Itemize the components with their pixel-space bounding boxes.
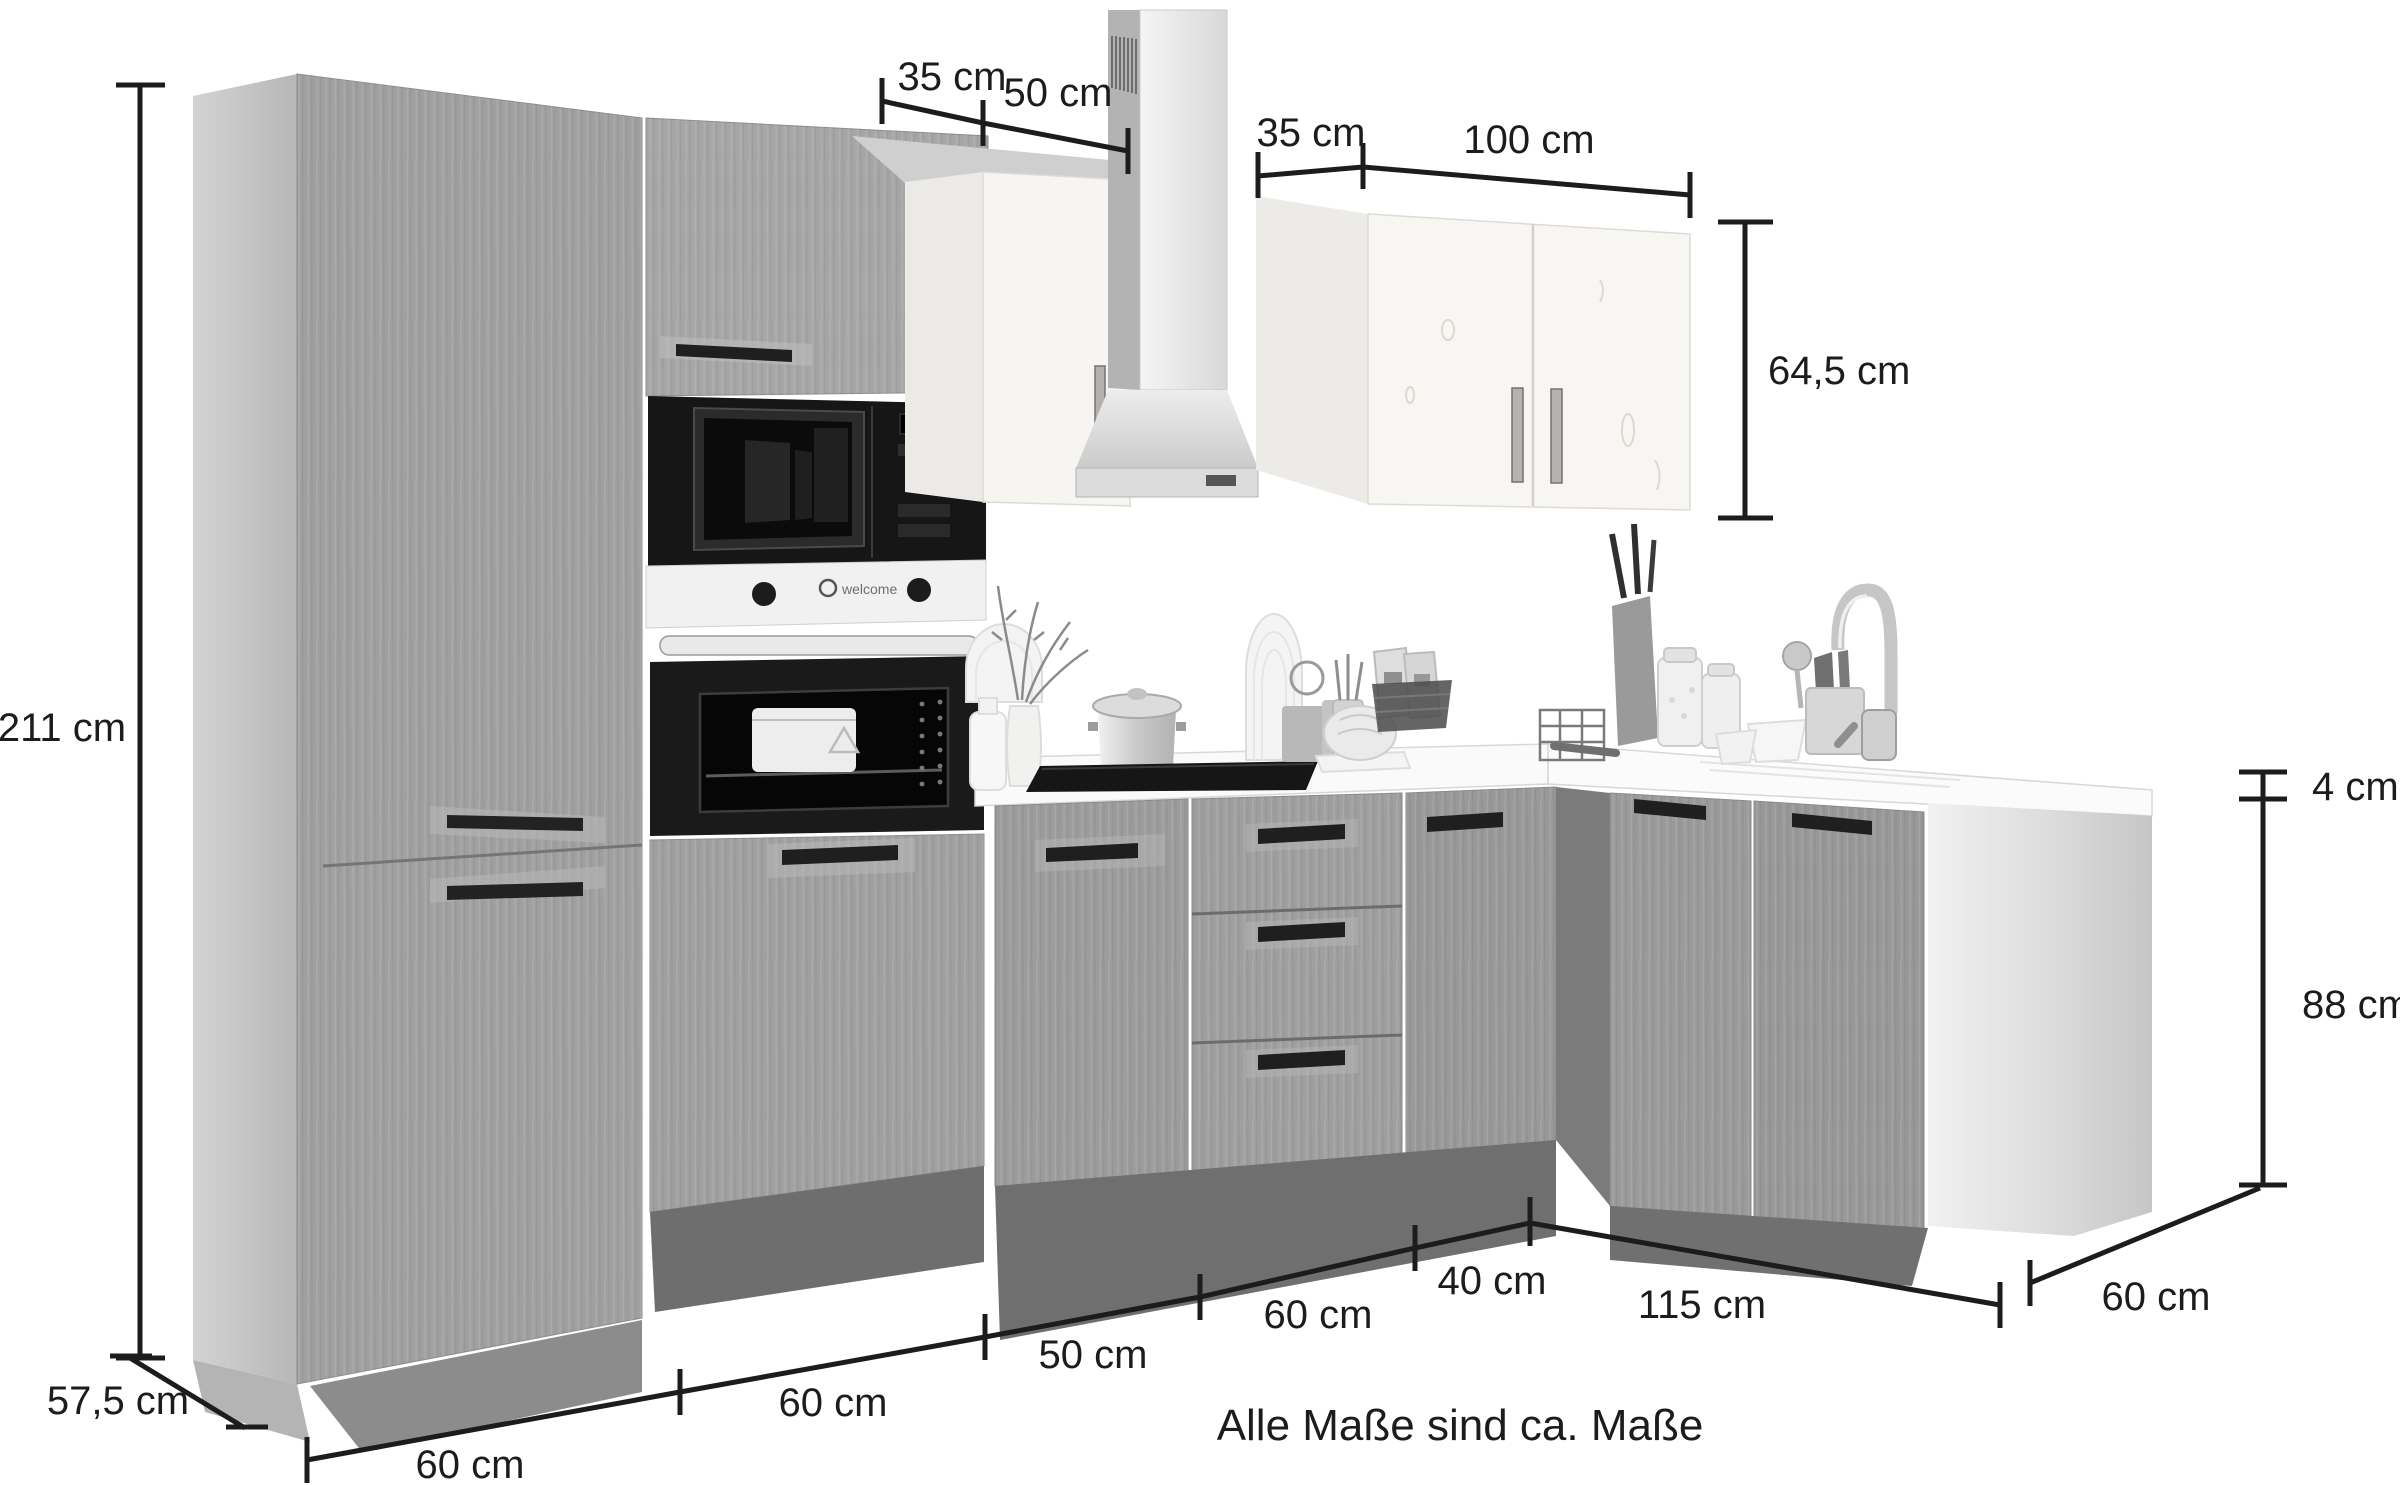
- storage-jar: [1658, 648, 1702, 746]
- utensil-caddy: [1806, 650, 1864, 754]
- measurements-note: Alle Maße sind ca. Maße: [1217, 1401, 1704, 1450]
- base-cabinets-right: [1556, 787, 2152, 1286]
- wall-cabinet-right: [1256, 196, 1690, 510]
- label-base-height: 88 cm: [2302, 983, 2400, 1027]
- oven-knob-right: [907, 578, 931, 602]
- wall-cabinet-left-side: [905, 172, 983, 502]
- label-right-run-depth: 60 cm: [2102, 1275, 2211, 1319]
- bowl-stack: [1716, 730, 1756, 764]
- label-right-run-length: 115 cm: [1638, 1283, 1766, 1327]
- hood-vent-slats: [1112, 36, 1136, 94]
- label-left-depth: 57,5 cm: [47, 1379, 189, 1423]
- label-unit1-width: 60 cm: [416, 1443, 525, 1485]
- canister: [1282, 706, 1326, 762]
- bowl-stack: [1748, 720, 1806, 762]
- wall-cabinet-right-side: [1256, 196, 1368, 504]
- oven-knob-left: [752, 582, 776, 606]
- snack-basket: [1372, 648, 1452, 732]
- microwave-reflection: [745, 440, 790, 523]
- dimension-worktop-and-base-height: [2239, 772, 2287, 1185]
- microwave-button: [898, 524, 950, 537]
- knife-block: [1612, 524, 1658, 746]
- utensils: [1336, 654, 1362, 700]
- label-wall-cabinet-height: 64,5 cm: [1768, 349, 1910, 393]
- milk-bottle-neck: [979, 698, 997, 714]
- dimension-wall-cabinet-height: [1718, 222, 1773, 518]
- oven: welcome: [646, 560, 986, 836]
- oven-control-strip: [646, 560, 986, 628]
- label-wall-cabinet-depth: 35 cm: [1257, 111, 1366, 155]
- hood-duct-front: [1140, 10, 1227, 390]
- hood-canopy: [1076, 390, 1258, 468]
- label-hood-duct-depth: 35 cm: [898, 55, 1007, 99]
- label-total-height: 211 cm: [0, 706, 126, 750]
- tall-cabinet: [193, 74, 642, 1452]
- right-end-panel: [1928, 803, 2152, 1236]
- label-unit3-width: 50 cm: [1039, 1333, 1148, 1377]
- tall-cabinet-side-face: [193, 74, 297, 1384]
- label-worktop-thickness: 4 cm: [2312, 765, 2399, 809]
- label-unit4-width: 60 cm: [1264, 1293, 1373, 1337]
- microwave-reflection: [795, 450, 812, 520]
- label-hood-width: 50 cm: [1004, 71, 1113, 115]
- microwave-button: [898, 504, 950, 517]
- microwave-mesh: [814, 428, 848, 522]
- kitchen-illustration: 1008 welcome: [193, 10, 2152, 1452]
- wall-cabinet-right-handle-right: [1551, 389, 1562, 483]
- corner-recess: [1556, 787, 1610, 1206]
- oven-handle: [660, 636, 978, 655]
- base-cabinets-front: [995, 787, 1556, 1340]
- kitchen-dimension-diagram: 1008 welcome: [0, 0, 2400, 1485]
- milk-bottle: [970, 712, 1006, 790]
- hood-control-panel: [1206, 475, 1236, 486]
- oven-brand-text: welcome: [841, 581, 897, 597]
- label-unit5-width: 40 cm: [1438, 1259, 1547, 1303]
- wall-cabinet-right-handle-left: [1512, 388, 1523, 482]
- wall-cabinet-right-front: [1368, 214, 1690, 510]
- label-unit2-width: 60 cm: [779, 1381, 888, 1425]
- oven-pot: [752, 708, 856, 772]
- label-wall-cabinet-width: 100 cm: [1463, 118, 1594, 162]
